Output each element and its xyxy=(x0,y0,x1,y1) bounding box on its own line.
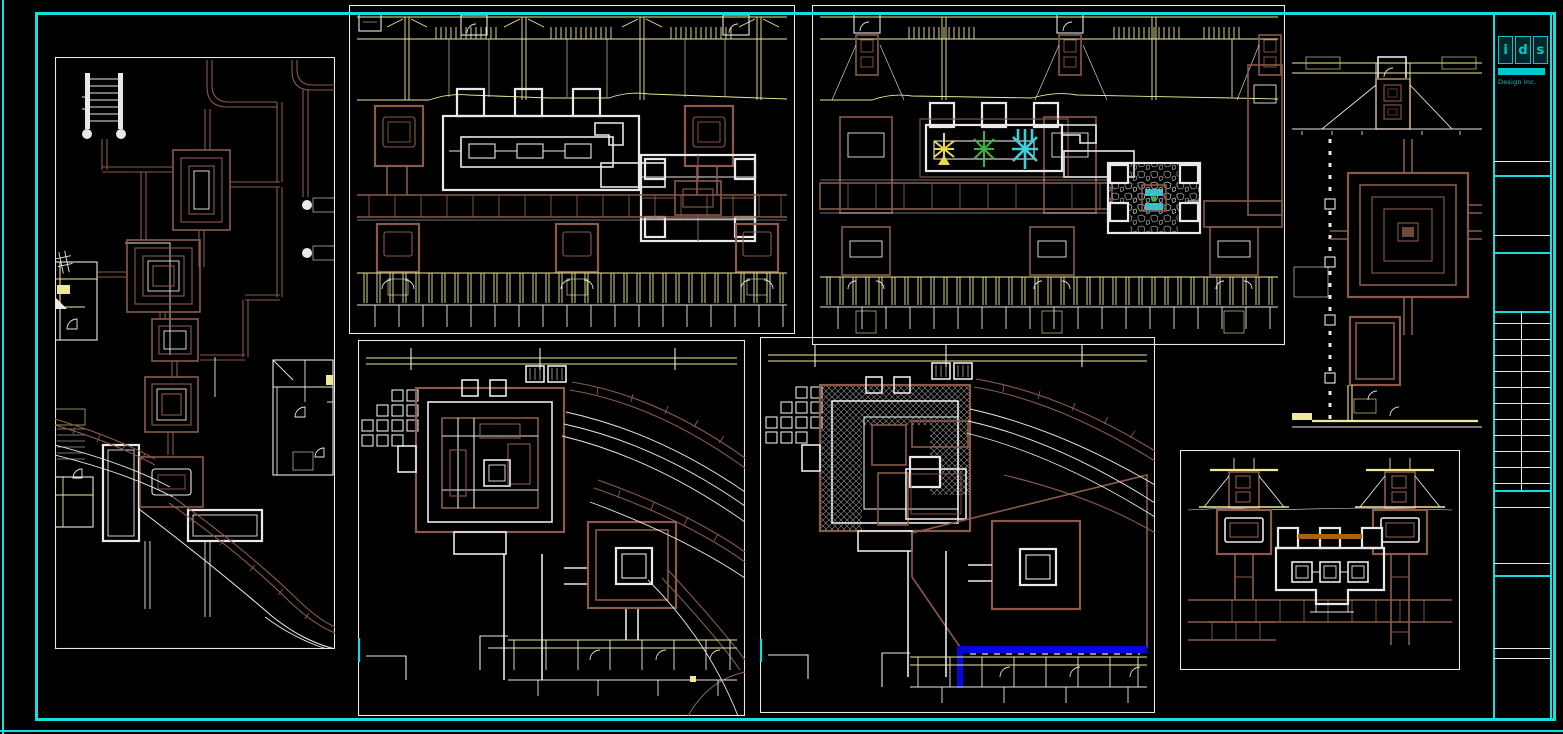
sheet-edge-bottom xyxy=(0,730,1563,732)
pavilion-right xyxy=(641,155,755,241)
panel-plan-top-right-hatched xyxy=(812,5,1285,345)
pier xyxy=(685,106,733,166)
titleblock-rule xyxy=(1494,507,1550,508)
pier xyxy=(556,224,598,272)
buildings-left xyxy=(55,262,97,527)
stair-top-left xyxy=(82,73,126,139)
curved-roads xyxy=(966,379,1155,533)
panel-detail-right-lower xyxy=(1180,450,1460,670)
elevation-strip xyxy=(357,13,787,100)
cad-model-space[interactable]: i d s Design Inc. xyxy=(0,0,1563,734)
hatched-piers-row2 xyxy=(842,227,1258,275)
building-right xyxy=(273,360,333,475)
hatched-walkway-band xyxy=(820,180,1282,227)
stepping-stones xyxy=(766,387,822,443)
company-logo: i d s Design Inc. xyxy=(1498,36,1548,86)
titleblock-rule xyxy=(1494,563,1550,564)
panel-border xyxy=(1181,451,1460,670)
titleblock-table-row xyxy=(1494,435,1550,436)
stair-right-edge xyxy=(302,198,335,260)
plant-symbol-green xyxy=(974,131,994,167)
dotted-colonnade xyxy=(1325,139,1335,425)
pier xyxy=(736,224,778,272)
titleblock-table-row xyxy=(1494,483,1550,484)
logo-subtitle: Design Inc. xyxy=(1498,78,1548,86)
titleblock-table-divider xyxy=(1521,311,1522,490)
bottom-building xyxy=(480,636,737,696)
elevation-strip xyxy=(1292,57,1482,135)
titleblock-rule xyxy=(1494,658,1550,659)
top-wall xyxy=(768,345,1147,379)
furniture-cluster xyxy=(920,103,1134,177)
titleblock-table-row xyxy=(1494,387,1550,388)
plant-symbol-cyan xyxy=(1012,129,1038,169)
step-outline xyxy=(768,655,808,679)
colonnade-strip xyxy=(357,273,787,327)
concentric-pavilion xyxy=(1330,139,1482,335)
logo-letter-box: s xyxy=(1533,36,1548,64)
walkway-band xyxy=(357,167,787,220)
titleblock-border-right xyxy=(1550,13,1552,721)
pier xyxy=(375,106,423,166)
panel-border xyxy=(56,58,335,649)
furniture-cluster xyxy=(443,89,665,190)
bottom-building xyxy=(882,653,1147,703)
titleblock-border-left xyxy=(1493,13,1495,721)
plant-symbol-yellow xyxy=(934,133,954,165)
titleblock-rule xyxy=(1494,161,1550,162)
top-wall xyxy=(366,348,737,382)
titleblock-rule xyxy=(1494,575,1550,577)
logo-letter-box: i xyxy=(1498,36,1513,64)
titleblock-rule xyxy=(1494,235,1550,236)
garden-corridors xyxy=(97,60,335,455)
titleblock-rule xyxy=(1494,648,1550,649)
stepping-stones xyxy=(362,390,418,446)
lower-building xyxy=(1292,317,1482,427)
logo-letter-box: d xyxy=(1515,36,1530,64)
stair-comb xyxy=(1294,267,1328,297)
titleblock-table-row xyxy=(1494,467,1550,468)
titleblock-table-row xyxy=(1494,355,1550,356)
titleblock-rule xyxy=(1494,175,1550,177)
pier xyxy=(377,224,419,272)
panel-plan-top-middle xyxy=(349,5,795,334)
titleblock-table-row xyxy=(1494,339,1550,340)
panel-courtyard-plan xyxy=(358,340,745,716)
blue-annotation-bar xyxy=(957,646,1147,688)
step-outline xyxy=(366,656,406,680)
titleblock-table-row xyxy=(1494,323,1550,324)
hatched-plaza xyxy=(912,475,1147,647)
elevation-strip xyxy=(820,13,1281,100)
titleblock-table-row xyxy=(1494,419,1550,420)
panel-detail-right-upper xyxy=(1292,55,1482,428)
titleblock-table-row xyxy=(1494,403,1550,404)
panel-courtyard-plan-hatched xyxy=(760,337,1155,713)
orange-bar xyxy=(1298,534,1362,539)
curved-roads xyxy=(562,382,745,716)
stone-pavilion xyxy=(1108,163,1200,233)
logo-name-bar xyxy=(1498,68,1545,75)
titleblock-rule xyxy=(1494,490,1550,492)
titleblock-rule xyxy=(1494,252,1550,254)
panel-site-plan-left xyxy=(55,57,335,649)
titleblock-table-row xyxy=(1494,451,1550,452)
sheet-edge-left xyxy=(2,0,4,734)
building-complex xyxy=(398,380,564,554)
planters-bottom xyxy=(103,445,262,617)
titleblock-table-row xyxy=(1494,371,1550,372)
titleblock-rule xyxy=(1494,311,1550,313)
corridors xyxy=(504,554,638,680)
gate-tower xyxy=(856,35,1281,75)
colonnade-strip xyxy=(820,277,1278,333)
